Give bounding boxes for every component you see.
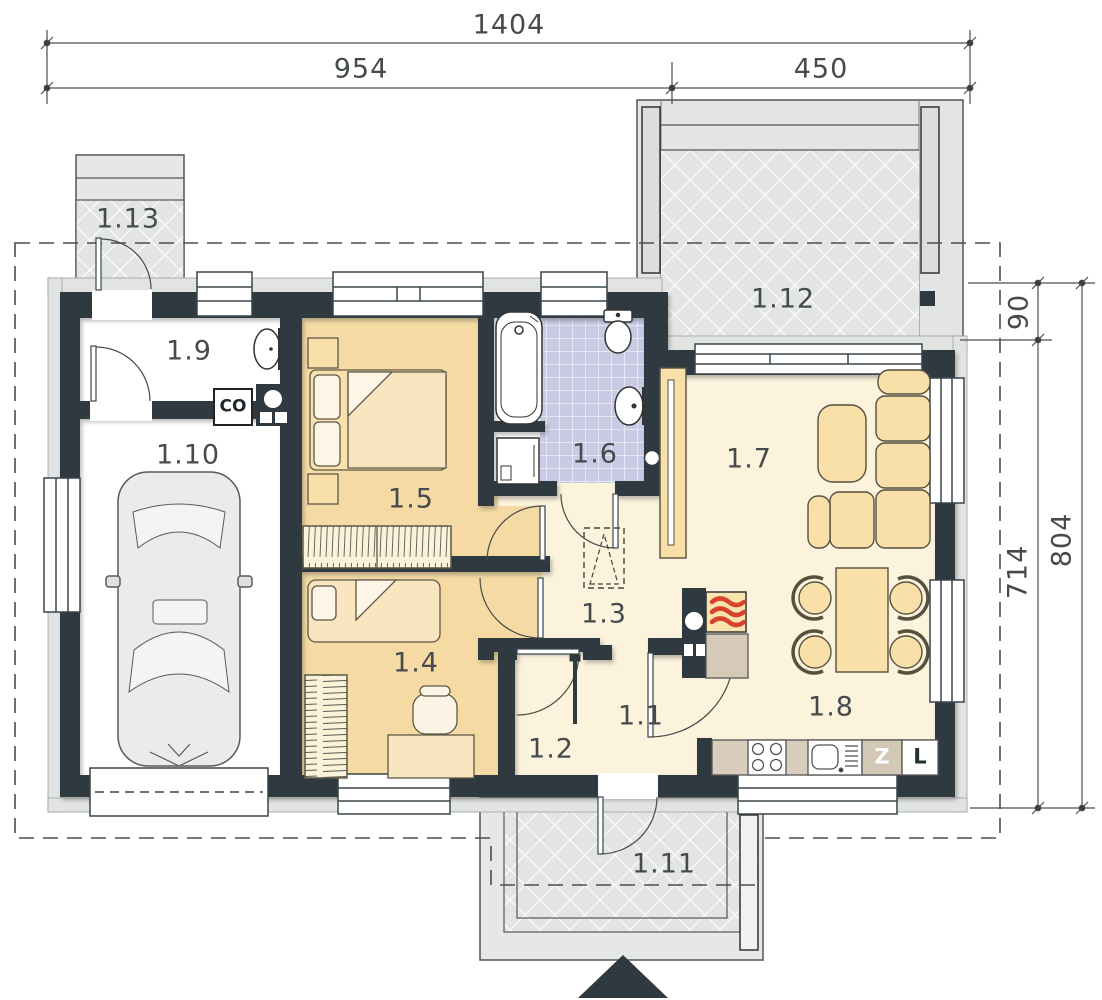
kitchen-sink — [808, 740, 862, 775]
fridge-label: L — [913, 747, 926, 768]
boiler-label: CO — [220, 399, 247, 416]
window-bathroom — [541, 272, 607, 316]
room-label-1-9: 1.9 — [166, 338, 212, 365]
nightstand — [308, 474, 338, 504]
garage-car — [106, 472, 252, 766]
floor-plan-drawing — [0, 0, 1102, 1000]
terrace-pillar-right — [921, 107, 939, 273]
coffee-table — [818, 405, 866, 482]
window-garage-west — [44, 478, 80, 612]
window-bedroom-1-4 — [338, 774, 450, 814]
window-kitchen — [738, 774, 897, 814]
room-label-1-11: 1.11 — [632, 851, 696, 878]
chimney-vent — [645, 451, 660, 466]
room-label-1-6: 1.6 — [572, 441, 618, 468]
dim-left-width: 954 — [334, 56, 389, 83]
single-bed — [308, 580, 440, 642]
room-label-1-3: 1.3 — [581, 601, 627, 628]
window-living-east-2 — [930, 580, 964, 702]
double-bed — [310, 370, 446, 470]
stove — [748, 740, 786, 775]
room-label-1-8: 1.8 — [808, 694, 854, 721]
tall-cabinet — [660, 368, 686, 558]
dim-total-width: 1404 — [473, 12, 546, 39]
porch-column — [740, 815, 758, 950]
bathtub — [496, 312, 542, 424]
wardrobe — [305, 675, 347, 778]
room-label-1-7: 1.7 — [726, 446, 772, 473]
entrance-arrow — [578, 955, 668, 998]
bedroom-1-5-furniture — [303, 338, 451, 568]
window-room-1-9 — [197, 272, 252, 316]
room-label-1-1: 1.1 — [618, 703, 664, 730]
nightstand — [308, 338, 338, 368]
floor-plan-page: 1404 954 450 90 714 804 1.1 1.2 1.3 1.4 … — [0, 0, 1102, 1000]
washing-machine — [256, 384, 290, 426]
room-label-1-5: 1.5 — [388, 486, 434, 513]
dim-total-depth: 804 — [1049, 513, 1076, 568]
room-label-1-12: 1.12 — [751, 286, 815, 313]
bath-washing-machine — [497, 438, 539, 484]
room-label-1-4: 1.4 — [393, 650, 439, 677]
dim-terrace-depth: 90 — [1006, 294, 1033, 330]
dishwasher-label: Z — [874, 747, 889, 768]
washbasin — [615, 387, 643, 425]
dim-house-depth: 714 — [1005, 545, 1032, 600]
room-label-1-13: 1.13 — [96, 206, 160, 233]
utility-sink — [254, 329, 280, 369]
window-living-east-1 — [930, 378, 964, 503]
terrace-pillar-left — [642, 107, 660, 273]
dining-table — [836, 568, 888, 672]
desk — [388, 735, 474, 778]
window-bedroom-1-5 — [333, 272, 483, 316]
porch-1-11 — [480, 797, 763, 960]
toilet — [604, 310, 632, 353]
kitchen-counter — [712, 740, 938, 775]
wardrobe — [303, 526, 451, 568]
garage-door — [90, 768, 268, 816]
room-label-1-2: 1.2 — [528, 736, 574, 763]
terrace-post — [920, 291, 935, 306]
room-label-1-10: 1.10 — [156, 442, 220, 469]
dim-right-width: 450 — [794, 56, 849, 83]
